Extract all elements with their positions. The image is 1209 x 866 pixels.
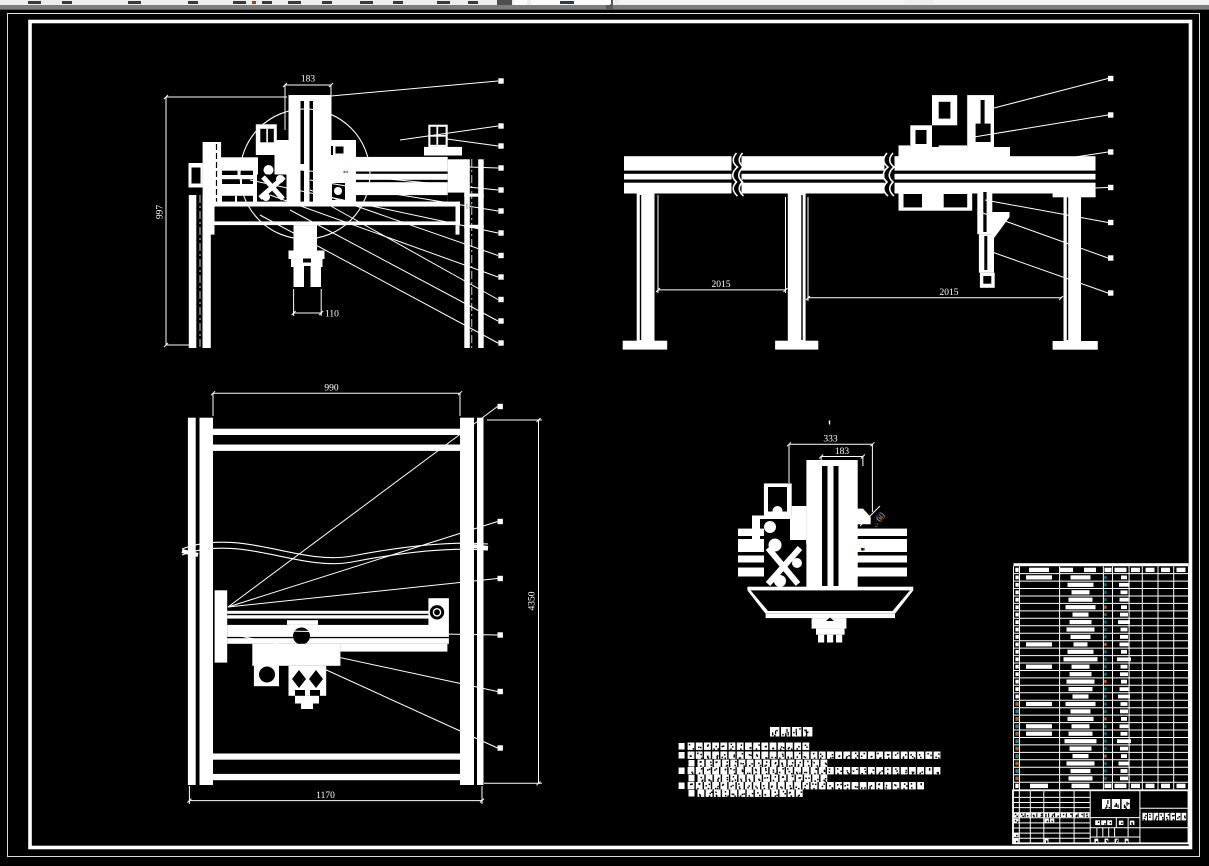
svg-text:183: 183 xyxy=(835,447,850,457)
svg-text:183: 183 xyxy=(301,75,316,85)
svg-text:990: 990 xyxy=(324,384,339,394)
svg-text:14: 14 xyxy=(465,202,473,211)
svg-text:0: 0 xyxy=(861,547,864,553)
svg-text:4350: 4350 xyxy=(528,591,538,610)
svg-text:1170: 1170 xyxy=(316,791,335,801)
svg-text:997: 997 xyxy=(156,205,166,220)
svg-text:2015: 2015 xyxy=(940,288,959,298)
svg-text:2: 2 xyxy=(875,522,878,529)
svg-text:2015: 2015 xyxy=(712,280,731,290)
svg-text:110: 110 xyxy=(325,310,339,320)
svg-text:333: 333 xyxy=(823,435,838,445)
